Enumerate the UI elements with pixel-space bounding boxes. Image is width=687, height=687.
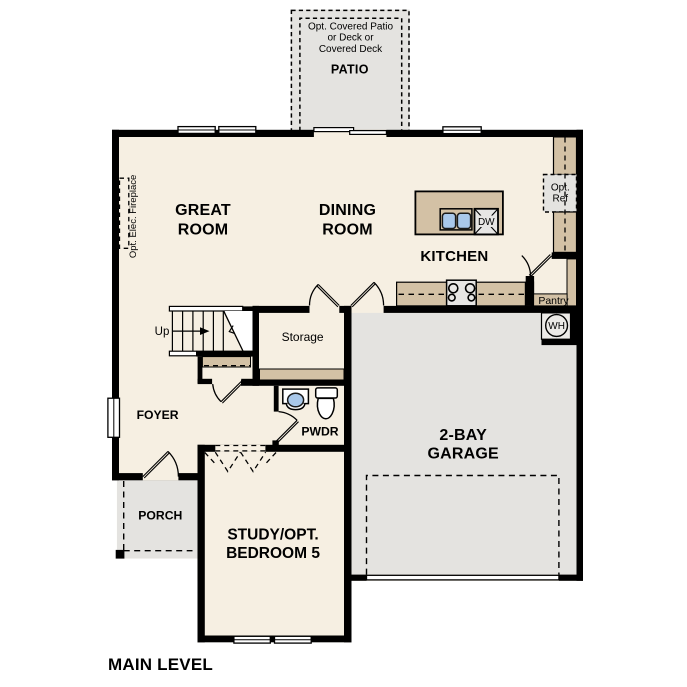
- svg-text:FOYER: FOYER: [137, 408, 179, 422]
- svg-text:DINING: DINING: [319, 202, 376, 219]
- svg-text:Covered Deck: Covered Deck: [319, 44, 383, 55]
- svg-text:PATIO: PATIO: [331, 63, 369, 77]
- svg-text:GREAT: GREAT: [175, 202, 231, 219]
- svg-text:Ref: Ref: [553, 194, 569, 205]
- svg-text:GARAGE: GARAGE: [427, 446, 499, 463]
- svg-text:PWDR: PWDR: [301, 425, 338, 439]
- svg-text:or Deck or: or Deck or: [327, 33, 374, 44]
- svg-text:Opt. Covered Patio: Opt. Covered Patio: [308, 22, 393, 33]
- svg-text:Pantry: Pantry: [538, 295, 569, 307]
- svg-text:2-BAY: 2-BAY: [439, 427, 487, 444]
- svg-text:ROOM: ROOM: [178, 222, 229, 239]
- svg-text:MAIN LEVEL: MAIN LEVEL: [108, 655, 213, 674]
- svg-text:ROOM: ROOM: [322, 222, 373, 239]
- svg-text:Opt. Elec. Fireplace: Opt. Elec. Fireplace: [128, 175, 139, 258]
- svg-text:STUDY/OPT.: STUDY/OPT.: [227, 526, 318, 543]
- svg-text:BEDROOM 5: BEDROOM 5: [226, 545, 320, 562]
- svg-text:Storage: Storage: [282, 330, 324, 344]
- svg-text:PORCH: PORCH: [138, 508, 182, 522]
- svg-text:DW: DW: [478, 217, 495, 228]
- svg-text:KITCHEN: KITCHEN: [420, 248, 488, 265]
- svg-text:Opt.: Opt.: [551, 182, 570, 193]
- svg-text:Up: Up: [155, 326, 170, 338]
- svg-text:WH: WH: [548, 321, 565, 332]
